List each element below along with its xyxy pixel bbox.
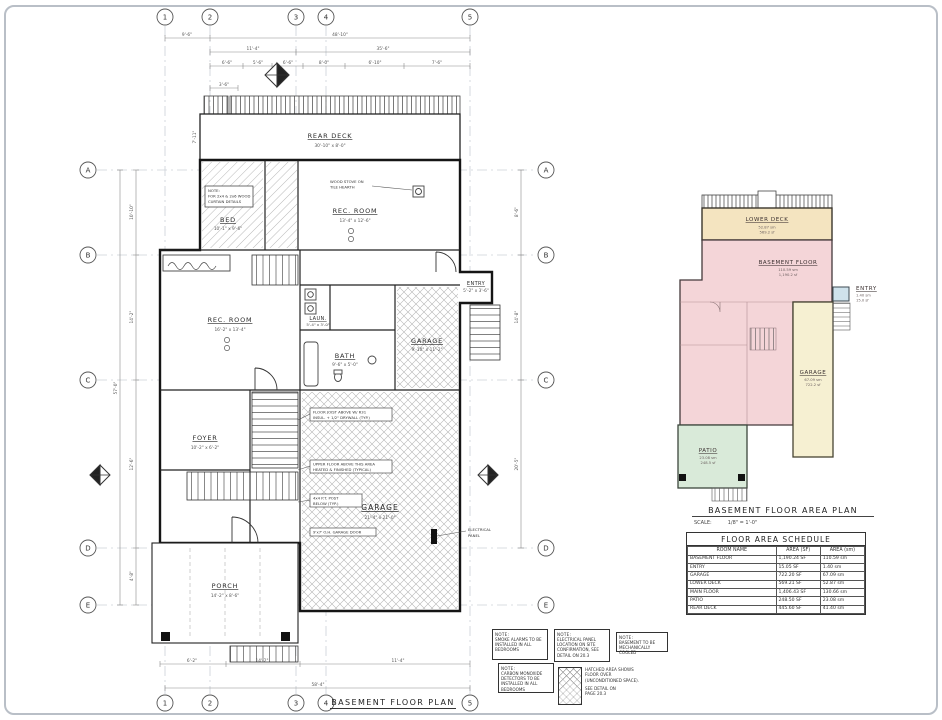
schedule-row: ENTRY15.05 SF1.40 sm: [688, 563, 865, 571]
room-label-porch: PORCH: [212, 582, 239, 590]
schedule-col-sf: AREA (SF): [776, 547, 820, 556]
svg-text:D: D: [543, 545, 548, 553]
schedule-row: LOWER DECK569.21 SF52.87 sm: [688, 580, 865, 588]
area-plan-scale: SCALE: 1/8" = 1'-0": [694, 520, 757, 526]
room-dim-garage-lower: 21'-4" x 21'-0": [364, 515, 395, 521]
svg-text:2: 2: [208, 700, 212, 708]
dim-left-overall: 57'-0": [113, 382, 119, 395]
electrical-panel-icon: [431, 529, 437, 544]
svg-text:52.87 sm: 52.87 sm: [758, 226, 776, 230]
svg-text:E: E: [86, 602, 90, 610]
svg-text:1,190.2 sf: 1,190.2 sf: [779, 273, 798, 277]
rear-deck: REAR DECK 30'-10" x 8'-0": [200, 114, 460, 160]
svg-text:23.08 sm: 23.08 sm: [699, 456, 717, 460]
dim-top: 9'-6": [182, 32, 192, 38]
dim-bottom: 11'-4": [392, 658, 405, 664]
room-label-rec-room-lower: REC. ROOM: [208, 316, 253, 324]
main-plan-title: BASEMENT FLOOR PLAN: [330, 698, 456, 709]
area-region-lower-deck: LOWER DECK 52.87 sm 569.2 sf: [702, 208, 832, 240]
area-plan-title: BASEMENT FLOOR AREA PLAN: [692, 506, 874, 517]
svg-text:5: 5: [468, 700, 472, 708]
room-dim-garage-upper: 9'-10" x 11'-2": [411, 347, 442, 353]
floor-area-schedule: FLOOR AREA SCHEDULE ROOM NAME AREA (SF) …: [686, 532, 866, 615]
schedule-row: GARAGE722.20 SF67.09 sm: [688, 572, 865, 580]
dim-left: 12'-6": [129, 458, 135, 471]
svg-text:LOWER DECK: LOWER DECK: [746, 217, 789, 223]
note-co-detectors: NOTE: CARBON MONOXIDE DETECTORS TO BE IN…: [498, 663, 554, 693]
room-dim-porch: 14'-2" x 8'-6": [211, 593, 239, 599]
svg-text:CURTAIN DETAILS: CURTAIN DETAILS: [208, 199, 242, 204]
hatch-legend: HATCHED AREA SHOWS FLOOR OVER (UNCONDITI…: [558, 667, 646, 707]
svg-text:9'x7' O.H. GARAGE DOOR: 9'x7' O.H. GARAGE DOOR: [313, 530, 362, 535]
svg-text:ENTRY: ENTRY: [856, 286, 877, 292]
schedule-row: BASEMENT FLOOR1,190.24 SF110.59 sm: [688, 555, 865, 563]
svg-text:FLOOR JOIST ABOVE W/ R31: FLOOR JOIST ABOVE W/ R31: [313, 410, 367, 415]
dim-right: 20'-5": [514, 458, 520, 471]
porch: PORCH 14'-2" x 8'-6": [152, 543, 298, 662]
svg-text:HEATED & FINISHED (TYPICAL): HEATED & FINISHED (TYPICAL): [313, 467, 372, 472]
room-dim-bath: 9'-6" x 5'-0": [332, 362, 358, 368]
svg-text:3: 3: [294, 700, 298, 708]
svg-text:15.0 sf: 15.0 sf: [856, 299, 869, 303]
dim-bottom-overall: 58'-4": [312, 682, 325, 688]
svg-text:BASEMENT FLOOR: BASEMENT FLOOR: [759, 260, 818, 266]
area-region-patio: PATIO 23.08 sm 248.5 sf: [678, 425, 747, 501]
svg-text:BASEMENT FLOOR PLAN: BASEMENT FLOOR PLAN: [331, 698, 454, 707]
patio-steps: [712, 488, 747, 501]
dim-left: 10'-10": [129, 204, 135, 220]
dim-bottom: 6'-2": [187, 658, 197, 664]
dim-right: 14'-8": [514, 311, 520, 324]
room-dim-entry: 5'-2" x 3'-6": [463, 288, 489, 294]
bed-note-box: NOTE: FOR 2x4 & 2x6 WOOD CURTAIN DETAILS: [205, 186, 253, 207]
room-dim-rec-room-upper: 13'-4" x 12'-6": [339, 218, 370, 224]
dim-top: 11'-4": [247, 46, 260, 52]
svg-text:5: 5: [468, 14, 472, 22]
svg-text:1: 1: [163, 700, 167, 708]
dim-top-small: 3'-6": [219, 82, 229, 88]
svg-text:WOOD STOVE ON: WOOD STOVE ON: [330, 179, 364, 184]
svg-text:2: 2: [208, 14, 212, 22]
svg-text:248.5 sf: 248.5 sf: [701, 461, 717, 465]
porch-post-icon: [161, 632, 170, 641]
dim-top: 5'-6": [253, 60, 263, 66]
svg-text:4: 4: [324, 14, 329, 22]
schedule-col-room: ROOM NAME: [688, 547, 777, 556]
svg-text:INSUL. + 1/2" DRYWALL (TYP.): INSUL. + 1/2" DRYWALL (TYP.): [313, 415, 370, 420]
schedule-row: REAR DECK445.60 SF41.40 sm: [688, 605, 865, 613]
schedule-title: FLOOR AREA SCHEDULE: [687, 533, 865, 546]
room-label-bed: BED: [220, 216, 236, 224]
schedule-row: PATIO248.50 SF23.08 sm: [688, 597, 865, 605]
dim-top: 8'-0": [319, 60, 329, 66]
svg-text:1: 1: [163, 14, 167, 22]
svg-text:3: 3: [294, 14, 298, 22]
scale-value: 1/8" = 1'-0": [728, 520, 758, 526]
svg-text:GARAGE: GARAGE: [800, 370, 827, 376]
room-dim-foyer: 10'-2" x 6'-2": [191, 445, 219, 451]
room-dim-rear-deck: 30'-10" x 8'-0": [314, 143, 345, 149]
note-ventilation: NOTE: BASEMENT TO BE MECHANICALLY COOLED: [616, 632, 668, 652]
room-label-rear-deck: REAR DECK: [308, 132, 353, 140]
svg-text:67.09 sm: 67.09 sm: [804, 378, 822, 382]
dim-left: 4'-8": [129, 571, 135, 581]
area-region-entry: ENTRY 1.40 sm 15.0 sf: [833, 286, 877, 330]
dim-top: 6'-10": [369, 60, 382, 66]
sink-icon: [368, 356, 376, 364]
room-dim-rec-room-lower: 16'-2" x 13'-4": [214, 327, 245, 333]
crosshatch-swatch-icon: [558, 667, 582, 705]
svg-text:PANEL: PANEL: [468, 533, 481, 538]
dim-top: 35'-6": [377, 46, 390, 52]
dim-top: 6'-6": [283, 60, 293, 66]
svg-text:A: A: [86, 167, 91, 175]
dim-top: 6'-6": [222, 60, 232, 66]
svg-text:TILE HEARTH: TILE HEARTH: [329, 185, 355, 190]
svg-text:NOTE:: NOTE:: [208, 188, 220, 193]
svg-text:ELECTRICAL: ELECTRICAL: [468, 527, 492, 532]
room-label-entry: ENTRY: [467, 281, 486, 287]
svg-text:110.59 sm: 110.59 sm: [778, 268, 798, 272]
svg-text:4: 4: [324, 700, 329, 708]
svg-text:D: D: [85, 545, 90, 553]
area-region-garage: GARAGE 67.09 sm 722.2 sf: [793, 302, 833, 457]
svg-text:BELOW (TYP.): BELOW (TYP.): [313, 501, 339, 506]
svg-text:FOR 2x4 & 2x6 WOOD: FOR 2x4 & 2x6 WOOD: [208, 194, 250, 199]
svg-text:B: B: [544, 252, 549, 260]
dim-top: 48'-10": [332, 32, 348, 38]
patio-post-icon: [738, 474, 745, 481]
note-smoke-alarms: NOTE: SMOKE ALARMS TO BE INSTALLED IN AL…: [492, 629, 548, 660]
schedule-header-row: ROOM NAME AREA (SF) AREA (sm): [688, 547, 865, 556]
dim-deck-left: 7'-11": [192, 131, 198, 144]
porch-steps: [230, 646, 298, 662]
drawing-sheet: 9'-6" 48'-10" 11'-4" 35'-6" 6'-6" 5'-6" …: [0, 0, 942, 720]
scale-label: SCALE:: [694, 520, 712, 526]
patio-post-icon: [679, 474, 686, 481]
area-deck-railing: [702, 191, 832, 208]
basement-floor-plan-drawing: 9'-6" 48'-10" 11'-4" 35'-6" 6'-6" 5'-6" …: [0, 0, 600, 720]
svg-text:C: C: [544, 377, 549, 385]
svg-text:PATIO: PATIO: [699, 448, 718, 454]
svg-text:1.40 sm: 1.40 sm: [856, 294, 871, 298]
schedule-row: MAIN FLOOR1,406.43 SF130.66 sm: [688, 588, 865, 596]
dim-right: 8'-6": [514, 207, 520, 217]
svg-text:UPPER FLOOR ABOVE THIS AREA: UPPER FLOOR ABOVE THIS AREA: [313, 462, 375, 467]
bathtub-icon: [304, 342, 318, 386]
room-dim-laundry: 5'-4" x 3'-0": [306, 322, 329, 327]
dim-top: 7'-6": [432, 60, 442, 66]
svg-text:4x4 P.T. POST: 4x4 P.T. POST: [313, 496, 339, 501]
toilet-tank-icon: [334, 370, 342, 374]
room-label-foyer: FOYER: [192, 434, 217, 442]
svg-text:569.2 sf: 569.2 sf: [760, 231, 776, 235]
svg-text:A: A: [544, 167, 549, 175]
room-label-rec-room-upper: REC. ROOM: [333, 207, 378, 215]
room-label-bath: BATH: [335, 352, 355, 360]
svg-text:B: B: [86, 252, 91, 260]
svg-text:722.2 sf: 722.2 sf: [806, 383, 822, 387]
porch-post-icon: [281, 632, 290, 641]
svg-text:C: C: [86, 377, 91, 385]
svg-text:E: E: [544, 602, 548, 610]
room-label-garage-upper: GARAGE: [411, 337, 443, 345]
deck-railing: [204, 96, 460, 114]
schedule-col-sm: AREA (sm): [820, 547, 864, 556]
basement-area-plan-drawing: LOWER DECK 52.87 sm 569.2 sf BASEMENT FL…: [650, 180, 942, 510]
dim-left: 14'-2": [129, 311, 135, 324]
note-electrical-panel: NOTE: ELECTRICAL PANEL LOCATION ON SITE …: [554, 629, 610, 662]
room-label-garage-lower: GARAGE: [361, 503, 398, 512]
room-dim-bed: 10'-1" x 9'-6": [214, 226, 242, 232]
